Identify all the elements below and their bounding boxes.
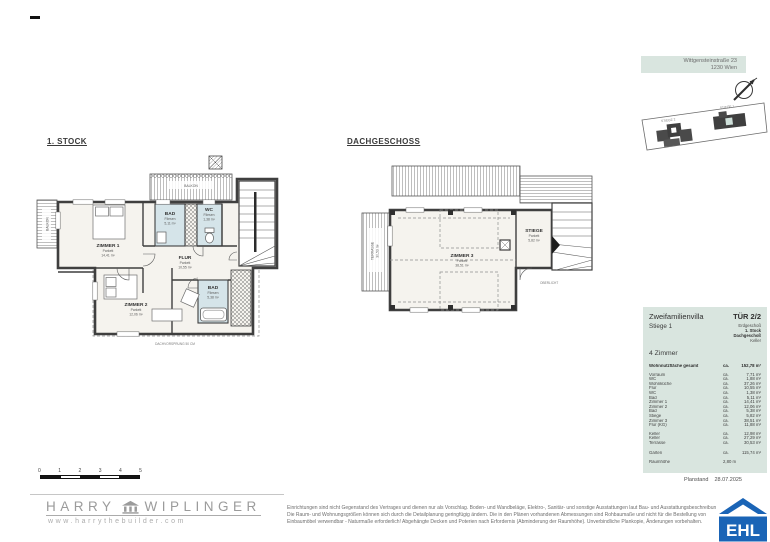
floor-item: Keller: [734, 338, 761, 343]
scale-tick: 1: [58, 468, 61, 474]
label-wc-floor: Fliesen: [204, 213, 215, 217]
label-bad1-floor: Fliesen: [165, 217, 176, 221]
duct-column: [231, 270, 251, 326]
wardrobe: [152, 309, 182, 321]
chimney: [209, 156, 222, 169]
title-block: Zweifamilienvilla TÜR 2/2 Stiege 1 Erdge…: [643, 307, 767, 473]
temple-icon: [121, 500, 140, 514]
stiege-number: Stiege 1: [649, 323, 672, 343]
label-zimmer1-area: 14,41 m²: [101, 254, 115, 258]
brand-url: www.harrythebuilder.com: [48, 518, 284, 525]
balcony-top-label: BALKON: [184, 184, 198, 188]
ehl-roof-icon: [719, 498, 767, 514]
floor-plan-first-floor: DACHVORSPRUNG 50 CM BALKON BALKON: [33, 148, 295, 353]
label-stiege-floor: Parkett: [529, 234, 540, 238]
terrace: TERRASSE 30,53 m²: [362, 213, 390, 291]
scale-bar: 0 1 2 3 4 5: [40, 468, 140, 479]
garten-row: Garten ca. 115,74 m²: [649, 451, 761, 456]
disclaimer-line: Einbaumöbel verwendbar - Naturmaße erfor…: [287, 519, 723, 526]
label-wc-area: 1,38 m²: [203, 218, 215, 222]
label-zimmer1-floor: Parkett: [103, 249, 114, 253]
label-zimmer3-area: 38,51 m²: [455, 264, 469, 268]
disclaimer: Einrichtungen sind nicht Gegenstand des …: [287, 505, 723, 526]
brand-last-name: WIPLINGER: [145, 499, 261, 514]
bed-zimmer1: [93, 205, 125, 239]
room-count: 4 Zimmer: [649, 350, 761, 357]
site-key-plan: STIEGE 2 STIEGE 1: [638, 96, 770, 154]
sink-icon: [157, 232, 166, 243]
ehl-wordmark: EHL: [726, 521, 760, 540]
plan-sheet: Wittgensteinstraße 23 1230 Wien STIEGE 2: [0, 0, 770, 542]
planstand-date: 28.07.2025: [714, 477, 742, 483]
bed-zimmer2: [104, 275, 137, 299]
scale-tick: 0: [38, 468, 41, 474]
label-flur-area: 10,55 m²: [178, 266, 192, 270]
label-bad2-area: 5,38 m²: [207, 296, 219, 300]
floor-plan-attic: TERRASSE 30,53 m²: [344, 156, 624, 326]
attic-title: DACHGESCHOSS: [347, 137, 420, 146]
project-name: Zweifamilienvilla: [649, 312, 704, 321]
label-bad2-floor: Fliesen: [208, 291, 219, 295]
registration-mark: [30, 16, 40, 19]
area-row: Terrasseca.30,53 m²: [649, 441, 761, 446]
label-bad1-area: 5,11 m²: [164, 222, 176, 226]
area-table: Wohnnutzfläche gesamt ca. 152,78 m² Vorr…: [649, 364, 761, 465]
toilet-icon: [205, 228, 214, 243]
stair-void: [520, 176, 592, 203]
stiege-door: [520, 268, 532, 280]
balcony-top: BALKON: [150, 174, 232, 200]
unit-number: TÜR 2/2: [733, 312, 761, 321]
balcony-left-label: BALKON: [46, 217, 50, 231]
brand-first-name: HARRY: [46, 499, 116, 514]
brand-footer: HARRY WIPLINGER www.harrythebuilder.com: [30, 494, 284, 525]
ehl-logo: EHL: [716, 497, 770, 542]
label-zimmer2-floor: Parkett: [131, 308, 142, 312]
first-floor-title: 1. STOCK: [47, 137, 87, 146]
label-stiege-area: 5,82 m²: [528, 239, 540, 243]
disclaimer-line: Die Raum- und Wohnungsgrößen können sich…: [287, 512, 723, 519]
scale-tick: 3: [99, 468, 102, 474]
label-flur-floor: Parkett: [180, 261, 191, 265]
scale-tick: 5: [139, 468, 142, 474]
balcony-left: BALKON: [37, 200, 57, 248]
raumhoehe-row: Raumhöhe 2,80 m: [649, 460, 761, 465]
address-band: Wittgensteinstraße 23 1230 Wien: [641, 56, 746, 73]
bathtub: [201, 308, 227, 321]
roof-overhang: [392, 166, 520, 196]
scale-tick: 4: [119, 468, 122, 474]
disclaimer-line: Einrichtungen sind nicht Gegenstand des …: [287, 505, 723, 512]
floor-list: Erdgeschoß 1. Stock Dachgeschoß Keller: [734, 323, 761, 343]
planstand-label: Planstand: [684, 477, 708, 483]
scale-tick: 2: [78, 468, 81, 474]
staircase: [239, 181, 275, 266]
address-city: 1230 Wien: [641, 65, 737, 72]
label-zimmer3-floor: Parkett: [457, 259, 468, 263]
plan-status: Planstand 28.07.2025: [600, 477, 756, 483]
skylight-note: OBERLICHT: [540, 281, 558, 285]
overhang-note: DACHVORSPRUNG 50 CM: [155, 342, 195, 346]
area-total-row: Wohnnutzfläche gesamt ca. 152,78 m²: [649, 364, 761, 369]
area-row: Flur (KG)ca.11,88 m²: [649, 423, 761, 428]
terrace-area: 30,53 m²: [376, 243, 380, 257]
terrace-label: TERRASSE: [371, 241, 375, 260]
shaft: [185, 204, 197, 246]
label-zimmer2-area: 12,06 m²: [129, 313, 143, 317]
attic-staircase: [552, 203, 592, 270]
